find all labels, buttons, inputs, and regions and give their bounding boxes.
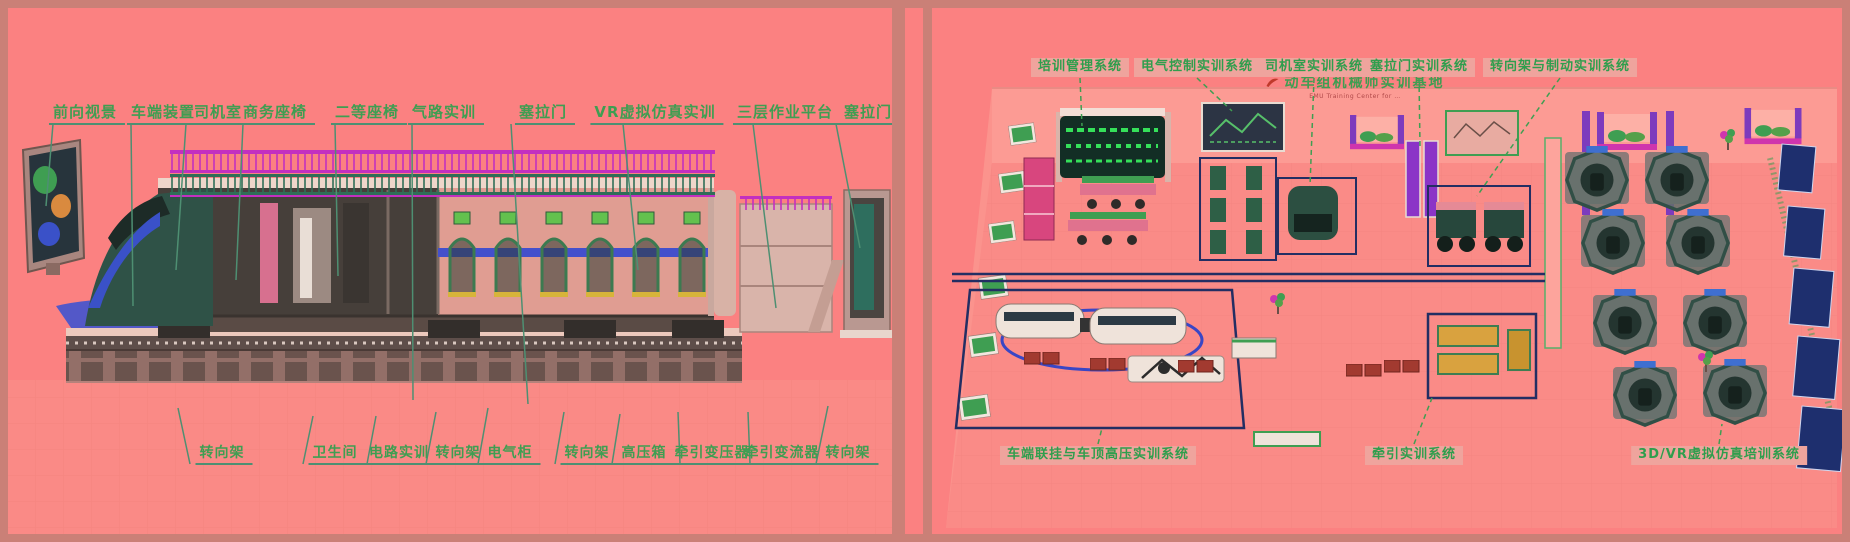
diagram-board xyxy=(1446,111,1518,155)
train-mockup xyxy=(85,178,736,338)
left-bottom-label-2: 电路实训 xyxy=(365,445,437,465)
training-management-led-wall xyxy=(1056,108,1171,182)
forward-view-screen xyxy=(23,140,84,275)
left-top-label-3: 商务座椅 xyxy=(239,104,315,125)
left-bottom-label-4: 电气柜 xyxy=(484,445,541,465)
left-top-label-5: 气路实训 xyxy=(408,104,484,125)
scaffold-railing xyxy=(170,150,715,197)
three-level-platform xyxy=(740,196,844,332)
panel-gap xyxy=(905,8,923,534)
right-top-label-1: 电气控制实训系统 xyxy=(1134,58,1260,77)
right-bottom-label-1: 牵引实训系统 xyxy=(1365,446,1463,465)
banner-subtitle: EMU Training Center for … xyxy=(1266,93,1445,100)
right-bottom-label-2: 3D/VR虚拟仿真培训系统 xyxy=(1631,446,1807,465)
left-top-label-6: 塞拉门 xyxy=(515,104,575,125)
left-top-label-4: 二等座椅 xyxy=(331,104,407,125)
partition-wall xyxy=(1545,138,1561,348)
right-bottom-label-0: 车端联挂与车顶高压实训系统 xyxy=(1000,446,1196,465)
left-top-label-8: 三层作业平台 xyxy=(733,104,841,125)
left-top-label-0: 前向视景 xyxy=(49,104,125,125)
dual-scene-figure: 前向视景车端装置司机室商务座椅二等座椅气路实训塞拉门VR虚拟仿真实训三层作业平台… xyxy=(0,0,1850,542)
left-top-label-7: VR虚拟仿真实训 xyxy=(590,104,723,125)
right-top-label-0: 培训管理系统 xyxy=(1031,58,1129,77)
right-panel-hall-scene: 动车组机械师实训基地 EMU Training Center for … 培训管… xyxy=(932,8,1842,534)
left-bottom-label-9: 转向架 xyxy=(822,445,879,465)
left-bottom-label-6: 高压箱 xyxy=(618,445,675,465)
banner-logo-icon xyxy=(1266,76,1280,88)
plug-door-mockup xyxy=(840,190,892,338)
left-bottom-label-3: 转向架 xyxy=(432,445,489,465)
right-top-label-2: 司机室实训系统 xyxy=(1258,58,1370,77)
right-top-label-3: 塞拉门实训系统 xyxy=(1363,58,1475,77)
electric-control-screen xyxy=(1202,103,1284,151)
left-bottom-label-1: 卫生间 xyxy=(309,445,366,465)
right-top-label-4: 转向架与制动实训系统 xyxy=(1483,58,1637,77)
left-bottom-label-0: 转向架 xyxy=(196,445,253,465)
left-panel-train-scene: 前向视景车端装置司机室商务座椅二等座椅气路实训塞拉门VR虚拟仿真实训三层作业平台… xyxy=(8,8,892,534)
left-bottom-label-8: 牵引变流器 xyxy=(741,445,828,465)
left-bottom-label-5: 转向架 xyxy=(561,445,618,465)
left-top-label-9: 塞拉门 xyxy=(840,104,892,125)
